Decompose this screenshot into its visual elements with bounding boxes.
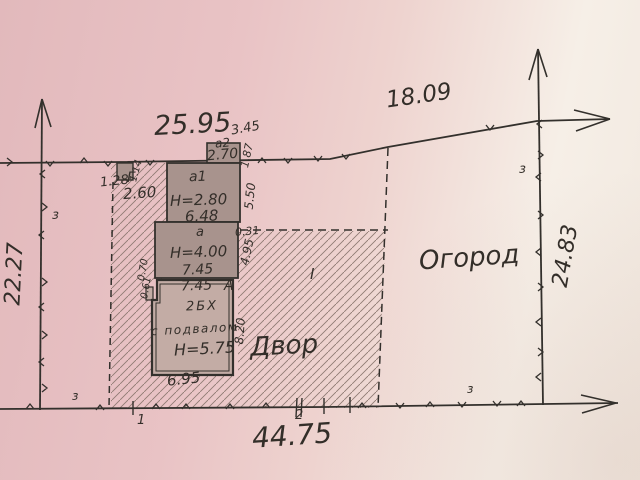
boundary-top — [0, 119, 610, 163]
house-dim-top: 7.45 — [181, 278, 213, 293]
annex-a-dim-width: 7.45 — [182, 262, 214, 278]
bti-site-plan: 25.95 18.09 22.27 24.83 44.75 1.14 1.28 … — [0, 0, 640, 480]
annex-a-height: Н=4.00 — [170, 244, 228, 261]
house-type: 2БХ — [186, 299, 219, 313]
garden-label: Огород — [418, 242, 520, 275]
house-letter: А — [224, 279, 234, 293]
annex-a1-dim-right: 5.50 — [242, 180, 257, 211]
shed-g-dim-side: 2.60 — [123, 185, 157, 202]
z-marker-bottom-right: з — [467, 383, 473, 395]
dim-left-label: 22.27 — [2, 240, 27, 307]
z-marker-left: з — [52, 209, 59, 222]
yard-label: Двор — [249, 331, 318, 361]
annex-a1-dim-width: 6.48 — [185, 208, 219, 224]
zone-label: I — [310, 267, 314, 282]
annex-a2-dim-inner: 2.70 — [206, 147, 238, 164]
point-2-marker: 2 — [295, 409, 303, 422]
annex-a1-label: а1 — [189, 170, 207, 185]
house-dim-bottom: 6.95 — [166, 370, 201, 388]
dim-bottom-label: 44.75 — [251, 419, 333, 453]
hatch-yard — [238, 231, 386, 408]
house-height: Н=5.75 — [174, 339, 236, 358]
z-marker-right: з — [519, 163, 526, 176]
z-marker-bottom-left: з — [72, 390, 78, 402]
shed-g-letter: Г — [127, 171, 135, 185]
point-1-marker: 1 — [137, 414, 145, 427]
annex-a-label: а — [196, 226, 204, 239]
plan-drawing — [0, 0, 640, 480]
annex-a-dim-offset: 0.31 — [235, 225, 260, 238]
house-dim-right: 8.20 — [233, 316, 247, 347]
